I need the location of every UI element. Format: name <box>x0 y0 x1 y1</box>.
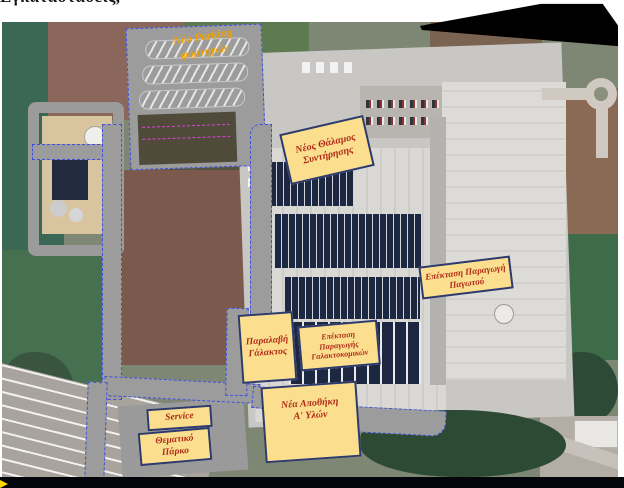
label-box-milk-reception: Παραλαβή Γάλακτος <box>238 311 298 384</box>
road-segment <box>250 124 272 324</box>
treatment-plant-tank <box>69 208 83 222</box>
label-line: Γάλακτος <box>248 346 287 360</box>
survey-line <box>142 136 230 140</box>
solar-panels <box>284 277 420 319</box>
label-line: Πάρκο <box>161 445 189 459</box>
treatment-plant-tank <box>50 200 67 217</box>
silo-tank <box>494 304 514 324</box>
clipped-caption: Εγκαταστάσεις, <box>0 0 150 9</box>
road-right <box>596 108 608 158</box>
road-segment <box>84 382 107 477</box>
image-canvas-edge-bottom <box>0 477 624 488</box>
label-line: Service <box>165 411 194 424</box>
label-box-dairy-expansion: Επέκταση Παραγωγής Γαλακτοκομικών <box>297 320 381 372</box>
label-box-raw-materials-warehouse: Νέα Αποθήκη Α' Υλών <box>260 381 361 464</box>
parked-trucks-row <box>302 62 356 73</box>
solar-panels <box>274 214 422 268</box>
road-to-roundabout <box>542 88 588 100</box>
factory-building-east <box>442 82 566 380</box>
caption-text: Εγκαταστάσεις, <box>0 0 150 7</box>
road-segment <box>102 124 122 400</box>
factory-internal-road <box>430 117 446 385</box>
label-box-theme-park: Θεματικό Πάρκο <box>138 427 213 466</box>
road-segment <box>32 144 110 160</box>
treatment-plant-building <box>52 158 88 200</box>
parking-stall-row <box>139 87 246 110</box>
figure-page: Εγκαταστάσεις, <box>0 0 624 488</box>
label-line: Α' Υλών <box>293 409 328 423</box>
unpaved-patch <box>138 112 238 165</box>
survey-line <box>142 124 230 128</box>
roundabout-center <box>594 87 608 101</box>
